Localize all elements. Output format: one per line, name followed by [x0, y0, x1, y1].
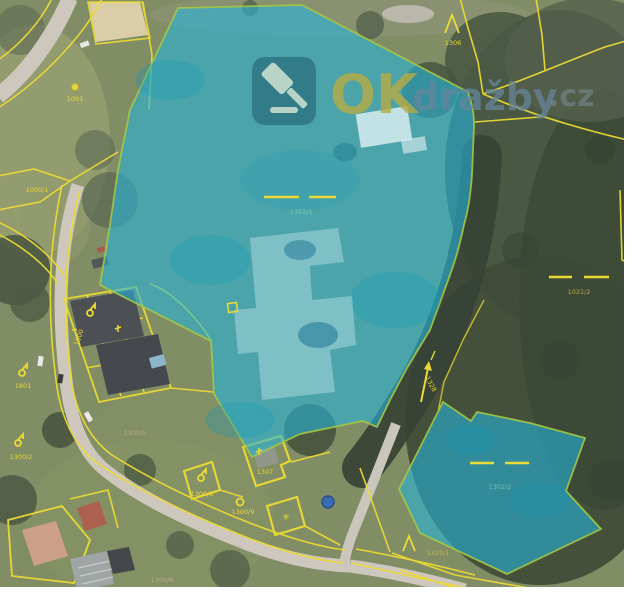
screenshot-root: 1001 1000/1 1306 1021/2 1302/1 1302/2 13…: [0, 0, 634, 600]
page-margins: [0, 0, 634, 600]
cadastral-aerial-map: 1001 1000/1 1306 1021/2 1302/1 1302/2 13…: [0, 0, 634, 600]
